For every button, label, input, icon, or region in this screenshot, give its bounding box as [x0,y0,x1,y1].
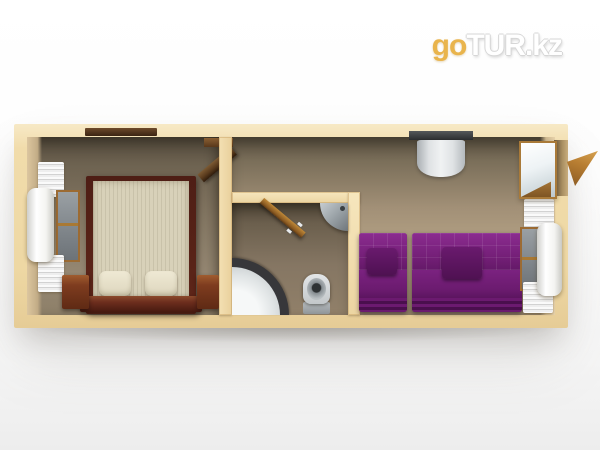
sofa-large [412,233,522,312]
wall-mount-bracket [409,131,473,140]
wall-mounted-tv [417,140,465,177]
faucet [340,206,345,211]
pillow-left [99,271,131,296]
bedroom-partition-wall [219,137,232,315]
sofa-base [412,298,522,312]
toilet-seat [307,278,326,300]
bed-footboard [80,296,202,312]
toilet [303,274,330,304]
logo-prefix: go [432,29,467,62]
pillow-right [145,271,177,296]
nightstand-right [197,275,219,309]
cabin-floorplan [14,124,568,328]
entrance-door-wood-wedge [521,175,551,197]
lounge-roller-blind [537,223,562,296]
sofa-base [359,298,407,312]
entrance-door-white-panel [519,141,557,199]
nightstand-left [62,275,89,309]
ground-shadow [22,327,562,343]
bedroom-window-glass [56,190,80,262]
entrance-door-leaf-outside [567,147,598,186]
sofa-cushion [442,247,482,279]
window-mullion [58,223,78,226]
sofa-cushion [367,248,397,275]
render-canvas: goTUR.kz [0,0,600,450]
wall-shelf [85,128,157,136]
bedroom-roller-blind [27,188,54,262]
sofa-small [359,233,407,312]
bathroom-top-wall [232,192,360,203]
double-bed [86,176,196,314]
logo-suffix: TUR.kz [466,29,562,62]
gotur-logo: goTUR.kz [432,31,562,61]
